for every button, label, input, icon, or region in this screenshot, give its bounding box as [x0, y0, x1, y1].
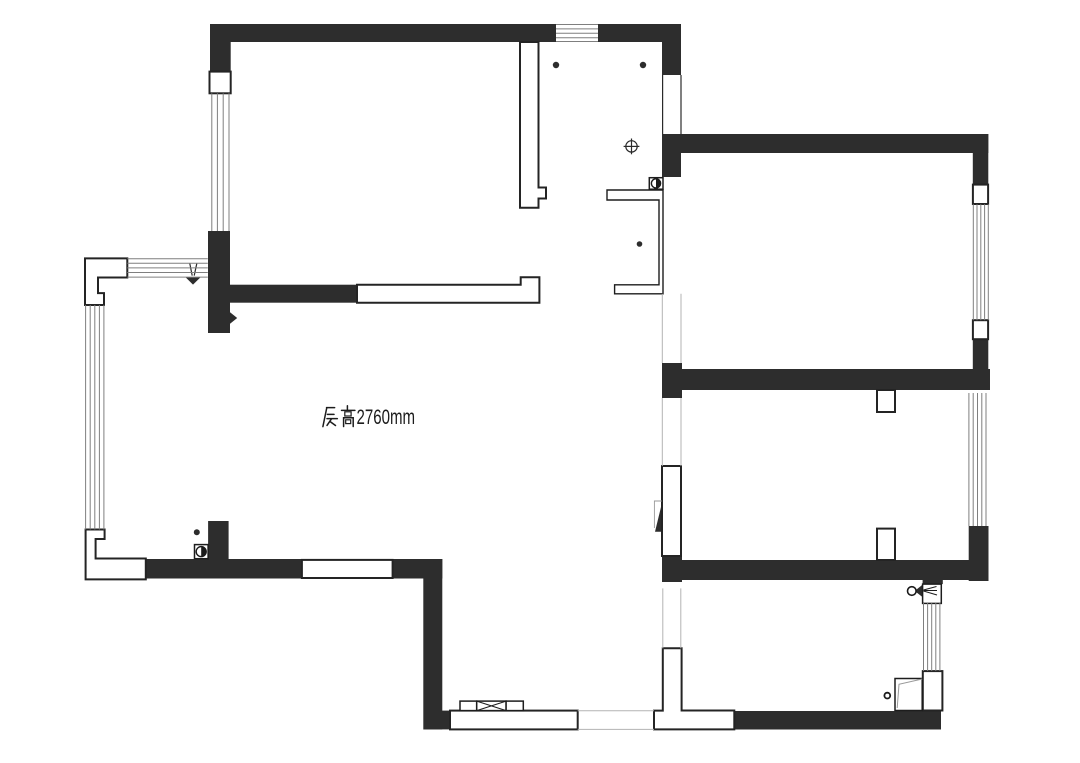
svg-text:2760mm: 2760mm — [357, 405, 416, 429]
